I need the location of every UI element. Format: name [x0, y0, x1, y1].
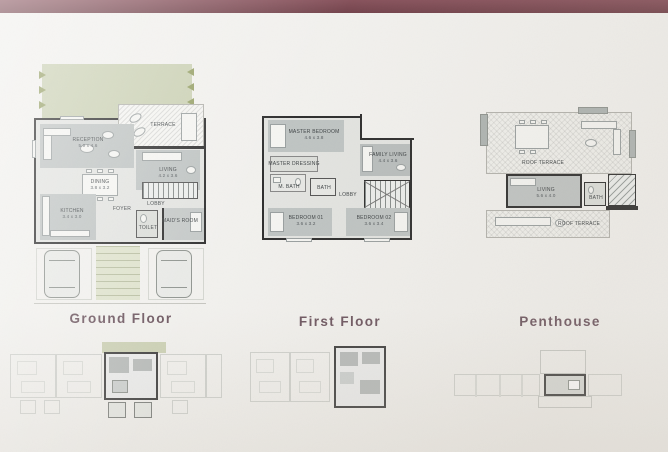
ground-floor-plan: TERRACE RECEPTION 5.0 x 4.6 LIVING 4.2 x… — [30, 58, 212, 306]
room-dims: 5.6 x 4.0 — [536, 193, 555, 199]
wall-slab — [629, 130, 636, 158]
bed — [270, 212, 284, 232]
kitchen-counter — [50, 230, 90, 237]
room-label-foyer: FOYER — [113, 206, 131, 212]
roof-terrace-lower: ROOF TERRACE — [486, 210, 610, 238]
ground-floor-title: Ground Floor — [30, 311, 212, 326]
coffee-table — [396, 164, 406, 171]
room-name: ROOF TERRACE — [558, 221, 600, 227]
car-windshield — [161, 260, 187, 261]
room-name: KITCHEN — [60, 208, 83, 214]
keyplan-highlighted-unit — [104, 352, 158, 400]
chair — [530, 150, 536, 154]
room-name: MASTER BEDROOM — [289, 129, 340, 135]
room-name: MAID'S ROOM — [162, 218, 198, 224]
staircase — [364, 180, 410, 210]
room-name: BATH — [317, 185, 331, 191]
staircase — [142, 182, 198, 199]
keyplan-unit — [250, 352, 290, 402]
room-label-roof-lower: ROOF TERRACE — [558, 221, 600, 227]
armchair — [102, 131, 114, 139]
room-dims: 4.2 x 3.6 — [158, 173, 177, 179]
top-accent-bar — [0, 0, 668, 13]
lounge-chair — [128, 111, 143, 124]
keyplan-divider — [475, 375, 477, 397]
keyplan-room — [112, 380, 128, 393]
room-label-reception: RECEPTION 5.0 x 4.6 — [73, 137, 104, 149]
room-label-dining: DINING 3.8 x 3.2 — [90, 179, 109, 191]
kitchen: KITCHEN 3.4 x 3.0 — [40, 194, 96, 240]
bedroom-01: BEDROOM 01 3.6 x 3.2 — [268, 208, 332, 236]
room-name: BEDROOM 02 — [357, 215, 392, 221]
room-label-maids: MAID'S ROOM — [162, 218, 198, 224]
room-label-lobby-first: LOBBY — [339, 192, 357, 198]
room-label-mbath: M. BATH — [278, 184, 299, 190]
window — [32, 140, 36, 158]
master-dressing: MASTER DRESSING — [270, 156, 318, 172]
chair — [86, 169, 92, 173]
keyplan-room — [256, 359, 274, 373]
room-label-bed2: BEDROOM 02 3.6 x 3.4 — [357, 215, 392, 227]
coffee-table — [585, 139, 597, 147]
keyplan-unit — [588, 374, 622, 396]
keyplan-room — [362, 352, 380, 364]
floorplan-brochure-page: TERRACE RECEPTION 5.0 x 4.6 LIVING 4.2 x… — [0, 0, 668, 452]
room-name: RECEPTION — [73, 137, 104, 143]
guest-toilet: TOILET — [136, 210, 158, 238]
chair — [108, 197, 114, 201]
first-floor-plan: MASTER BEDROOM 4.6 x 3.8 FAMILY LIVING 4… — [256, 104, 424, 246]
room-name: MASTER DRESSING — [268, 161, 319, 167]
room-label-roof-upper: ROOF TERRACE — [522, 160, 564, 166]
room-label-pbath: BATH — [589, 195, 603, 201]
keyplan-unit — [56, 354, 102, 398]
dining-table: DINING 3.8 x 3.2 — [82, 174, 118, 196]
keyplan-room — [171, 381, 195, 393]
room-label-bath: BATH — [317, 185, 331, 191]
keyplan-terrace-outline — [540, 350, 586, 374]
reception-room: RECEPTION 5.0 x 4.6 — [40, 124, 134, 168]
keyplan-room — [133, 359, 152, 371]
room-label-pliving: LIVING 5.6 x 4.0 — [536, 187, 555, 199]
keyplan-room — [568, 380, 580, 390]
penthouse-bath: BATH — [584, 182, 606, 206]
window — [60, 116, 84, 120]
keyplan-penthouse — [452, 348, 624, 410]
keyplan-room — [109, 357, 129, 373]
window — [286, 238, 312, 242]
room-label-terrace: TERRACE — [150, 122, 175, 128]
dining-table — [515, 125, 549, 149]
keyplan-room — [296, 359, 314, 373]
sink-icon — [273, 177, 281, 183]
kitchen-counter — [42, 196, 50, 236]
keyplan-room — [63, 361, 83, 375]
room-name: DINING — [91, 179, 110, 185]
room-name: ROOF TERRACE — [522, 160, 564, 166]
sofa — [181, 113, 197, 141]
car-windshield — [49, 287, 75, 288]
room-label-family: FAMILY LIVING 4.4 x 3.6 — [369, 152, 407, 164]
room-name: FOYER — [113, 206, 131, 212]
room-label-living: LIVING 4.2 x 3.6 — [158, 167, 177, 179]
keyplan-room — [340, 372, 354, 384]
sofa — [510, 178, 536, 186]
sofa — [43, 128, 71, 136]
keyplan-ground — [6, 340, 224, 426]
penthouse-title: Penthouse — [476, 314, 644, 329]
room-label-bed1: BEDROOM 01 3.6 x 3.2 — [289, 215, 324, 227]
toilet-icon — [588, 186, 594, 194]
staircase — [608, 174, 636, 206]
room-name: LOBBY — [339, 192, 357, 198]
car-icon — [44, 250, 80, 298]
keyplan-unit — [160, 354, 206, 398]
keyplan-unit — [206, 354, 222, 398]
keyplan-garage — [134, 402, 152, 418]
room-label-kitchen: KITCHEN 3.4 x 3.0 — [60, 208, 83, 220]
room-dims: 4.6 x 3.8 — [289, 135, 340, 141]
wall-slab — [578, 107, 608, 114]
armchair — [108, 150, 120, 158]
maids-room: MAID'S ROOM — [162, 208, 204, 240]
keyplan-garage — [172, 400, 188, 414]
master-bedroom: MASTER BEDROOM 4.6 x 3.8 — [268, 120, 344, 152]
room-dims: 3.8 x 3.2 — [90, 185, 109, 191]
keyplan-terrace-outline — [538, 396, 592, 408]
keyplan-room — [259, 381, 281, 393]
chair — [519, 150, 525, 154]
room-label-master: MASTER BEDROOM 4.6 x 3.8 — [289, 129, 340, 141]
room-name: BATH — [589, 195, 603, 201]
keyplan-divider — [521, 375, 523, 397]
keyplan-room — [340, 352, 358, 366]
entry-steps — [96, 246, 140, 300]
keyplan-first — [248, 344, 390, 414]
sofa — [142, 152, 182, 161]
keyplan-divider — [499, 375, 501, 397]
sofa — [495, 217, 551, 226]
footprint-notch — [360, 114, 414, 140]
lounge-chair — [132, 125, 147, 138]
bathroom: BATH — [310, 178, 336, 196]
first-floor-title: First Floor — [256, 314, 424, 329]
keyplan-room — [167, 361, 187, 375]
keyplan-room — [360, 380, 380, 394]
room-name: TOILET — [139, 225, 158, 231]
room-dims: 4.4 x 3.6 — [369, 158, 407, 164]
coffee-table — [186, 166, 196, 174]
chair — [530, 120, 536, 124]
room-name: TERRACE — [150, 122, 175, 128]
chair — [97, 169, 103, 173]
bedroom-02: BEDROOM 02 3.6 x 3.4 — [346, 208, 410, 236]
keyplan-highlighted-unit — [334, 346, 386, 408]
plot-boundary-line — [34, 303, 206, 304]
keyplan-highlighted-unit — [544, 374, 586, 396]
chair — [108, 169, 114, 173]
keyplan-unit — [454, 374, 540, 396]
chair — [97, 197, 103, 201]
keyplan-room — [67, 381, 91, 393]
keyplan-room — [299, 381, 321, 393]
room-name: LOBBY — [147, 201, 165, 207]
chair — [541, 120, 547, 124]
sofa — [581, 121, 617, 129]
room-name: LIVING — [537, 187, 555, 193]
room-label-dressing: MASTER DRESSING — [268, 161, 319, 167]
keyplan-room — [17, 361, 37, 375]
keyplan-room — [21, 381, 45, 393]
toilet-icon — [140, 214, 147, 223]
room-name: M. BATH — [278, 184, 299, 190]
car-windshield — [49, 260, 75, 261]
room-dims: 3.6 x 3.2 — [289, 221, 324, 227]
keyplan-unit — [290, 352, 330, 402]
penthouse-living: LIVING 5.6 x 4.0 — [506, 174, 582, 208]
chair — [519, 120, 525, 124]
keyplan-garage — [108, 402, 126, 418]
keyplan-garage — [44, 400, 60, 414]
window — [364, 238, 390, 242]
keyplan-garage — [20, 400, 36, 414]
roof-terrace-upper: ROOF TERRACE — [486, 112, 632, 174]
room-dims: 3.6 x 3.4 — [357, 221, 392, 227]
room-dims: 5.0 x 4.6 — [73, 143, 104, 149]
room-name: FAMILY LIVING — [369, 152, 407, 158]
master-bath: M. BATH — [270, 174, 306, 192]
room-label-lobby: LOBBY — [147, 201, 165, 207]
room-name: LIVING — [159, 167, 177, 173]
wall-slab — [480, 114, 488, 146]
bed — [270, 124, 286, 148]
car-windshield — [161, 287, 187, 288]
room-label-toilet: TOILET — [139, 225, 158, 231]
sofa — [613, 129, 621, 155]
bed — [394, 212, 408, 232]
room-dims: 3.4 x 3.0 — [60, 214, 83, 220]
wall-segment — [606, 206, 638, 210]
room-name: BEDROOM 01 — [289, 215, 324, 221]
keyplan-unit — [10, 354, 56, 398]
penthouse-plan: ROOF TERRACE LIVING 5.6 x 4.0 BATH — [476, 104, 644, 244]
car-icon — [156, 250, 192, 298]
family-living-room: FAMILY LIVING 4.4 x 3.6 — [360, 144, 410, 176]
